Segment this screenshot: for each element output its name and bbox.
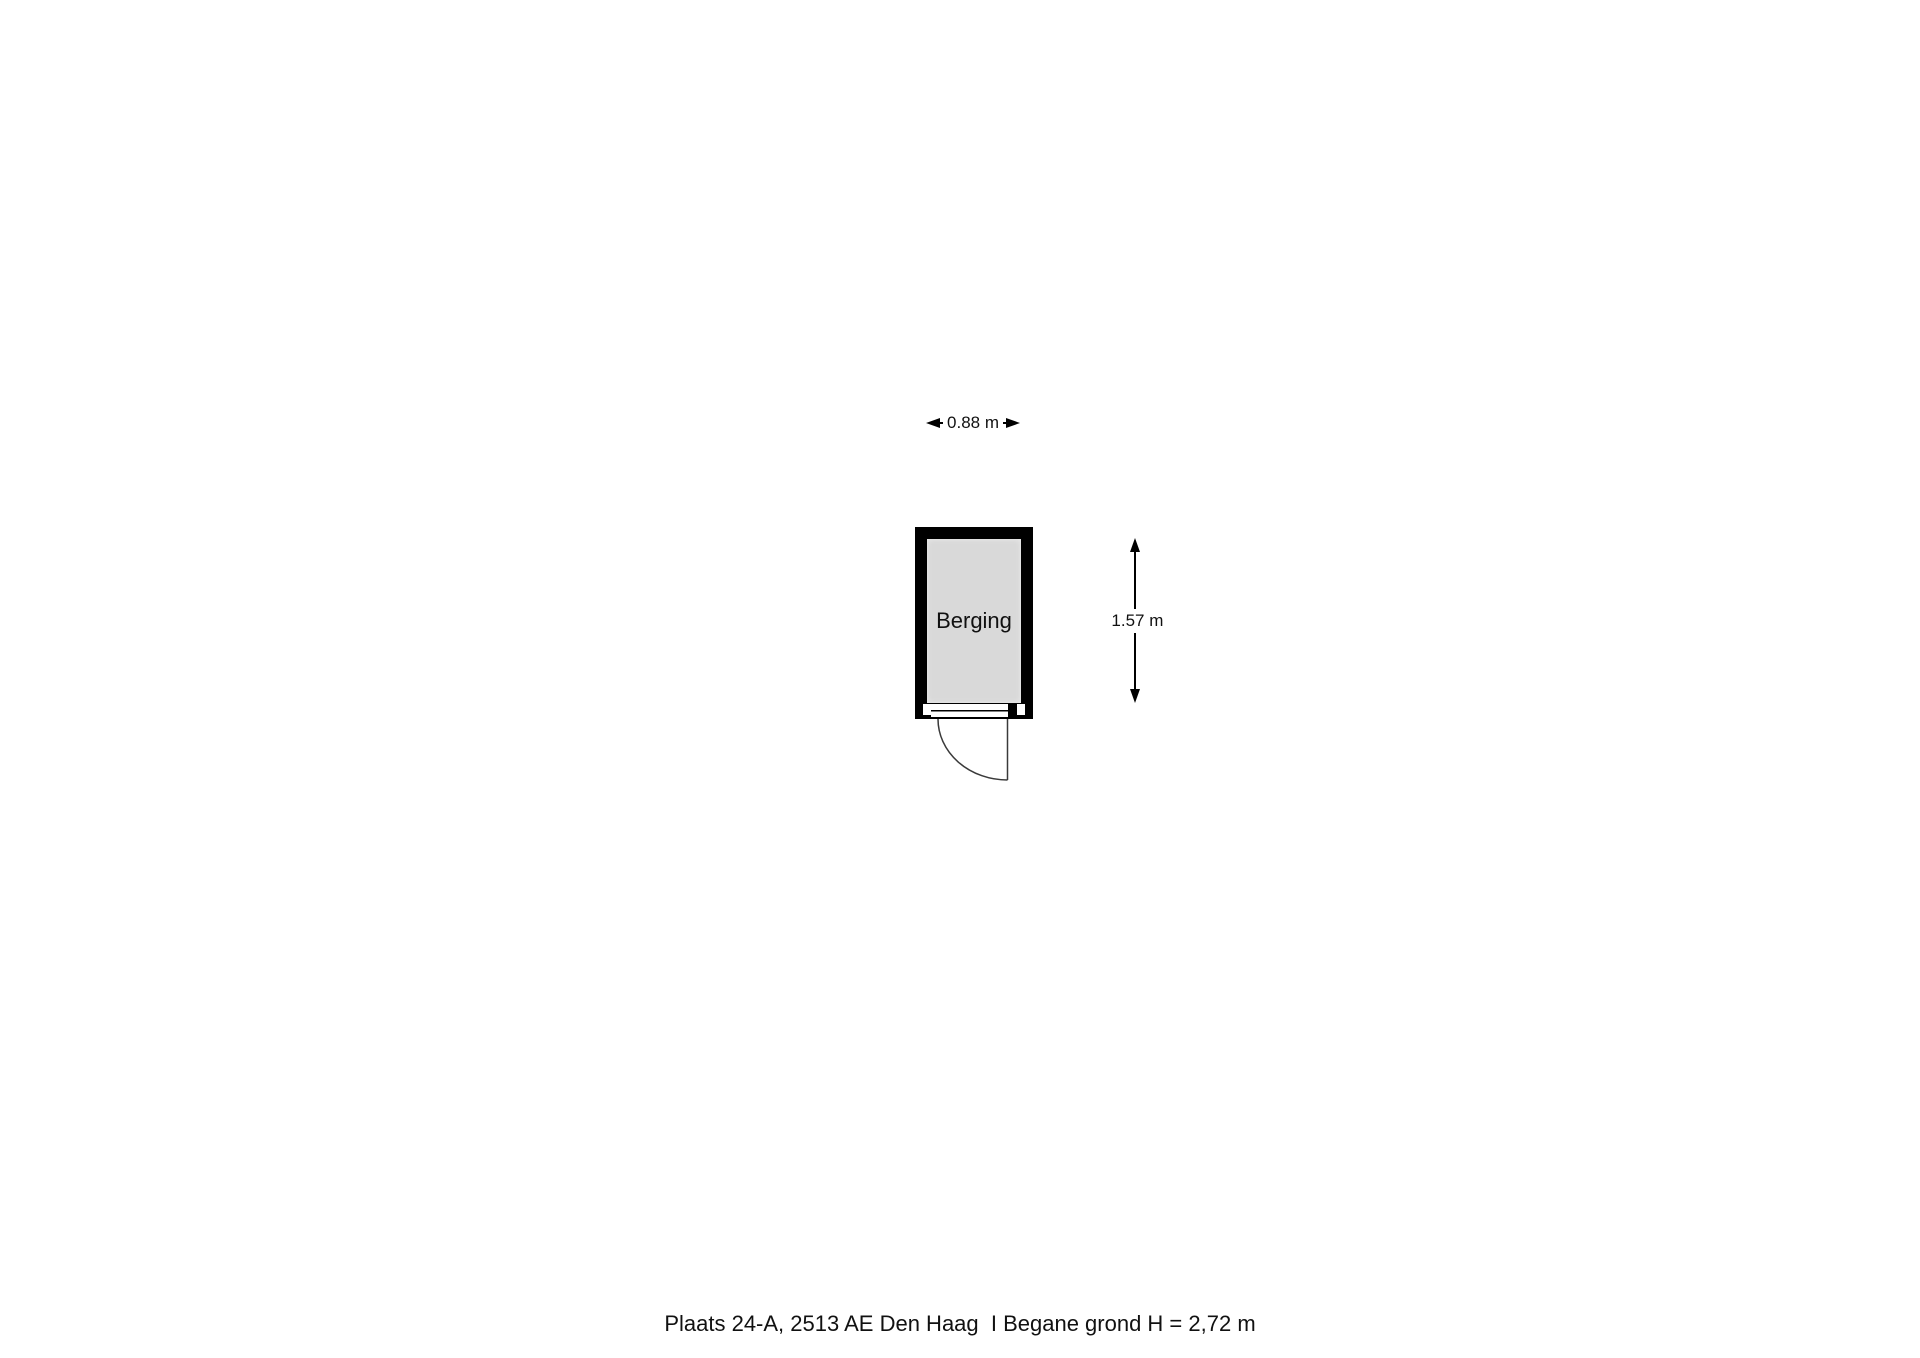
room-berging-floor: Berging <box>927 539 1021 703</box>
door-swing-icon <box>900 715 1050 800</box>
arrow-right-icon <box>1006 418 1020 428</box>
width-dimension: 0.88 m <box>926 414 1020 432</box>
door-jamb-right <box>1017 704 1025 715</box>
height-dimension-label: 1.57 m <box>1107 609 1167 633</box>
footer-caption: Plaats 24-A, 2513 AE Den Haag I Begane g… <box>0 1311 1920 1337</box>
door-arc <box>938 719 1008 780</box>
room-berging-walls: Berging <box>915 527 1033 719</box>
arrow-up-icon <box>1130 538 1140 552</box>
room-label: Berging <box>936 608 1012 634</box>
width-dimension-label: 0.88 m <box>943 414 1003 432</box>
arrow-left-icon <box>926 418 940 428</box>
arrow-down-icon <box>1130 689 1140 703</box>
height-dimension: 1.57 m <box>1127 538 1143 703</box>
door-jamb-left <box>923 704 931 715</box>
floorplan-page: 0.88 m Berging 1.57 m Plaats 24-A, 2513 … <box>0 0 1920 1358</box>
